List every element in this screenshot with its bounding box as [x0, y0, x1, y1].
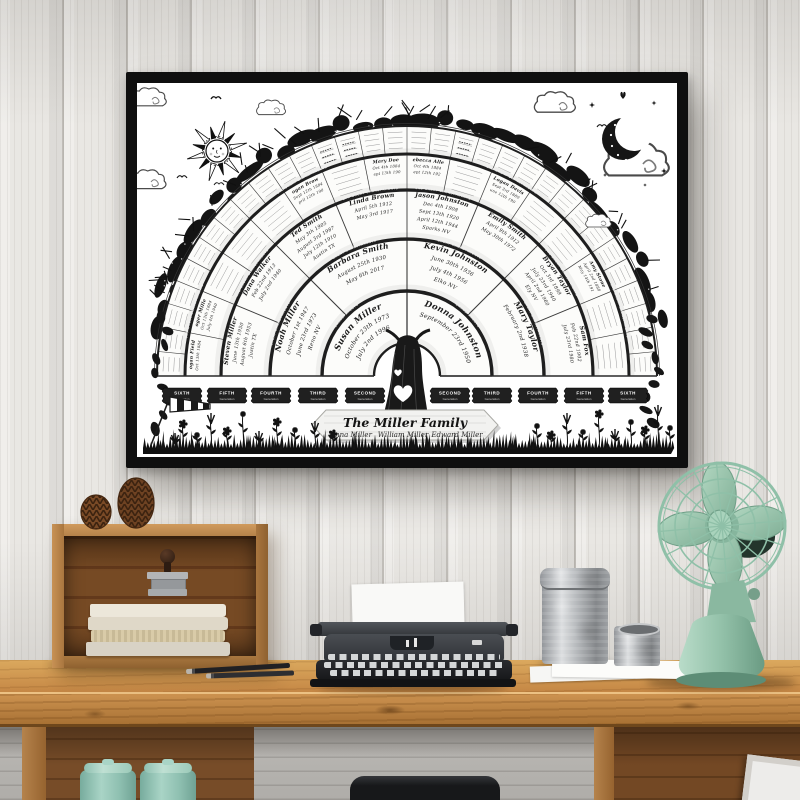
sun-icon — [187, 121, 247, 181]
wildflower — [222, 427, 232, 449]
butterfly-icon — [620, 92, 625, 99]
badge-generation-number: THIRD — [484, 391, 500, 396]
generation-badge: FOURTHGeneration — [518, 388, 558, 403]
generation-badge: THIRDGeneration — [472, 388, 512, 403]
cloud-icon — [534, 92, 575, 113]
key-row — [330, 670, 498, 676]
generation-badge: THIRDGeneration — [298, 388, 338, 403]
book — [88, 617, 228, 630]
paper-sheet — [351, 582, 464, 627]
typewriter-emblem — [472, 640, 482, 645]
fan-knob — [748, 588, 760, 600]
stool — [350, 776, 500, 800]
badge-generation-number: THIRD — [310, 391, 326, 396]
book — [90, 604, 226, 617]
left-cabinet-side — [22, 722, 46, 800]
badge-generation-number: FIFTH — [219, 391, 234, 396]
key-row — [324, 662, 504, 668]
badge-generation-word: Generation — [264, 397, 279, 401]
left-cabinet — [22, 722, 254, 800]
mint-jar — [80, 770, 136, 800]
wood-sign: The Miller FamilyAnna MillerWilliam Mill… — [312, 410, 501, 443]
typebar — [414, 638, 417, 647]
pinecones — [72, 474, 176, 530]
fan-foot — [676, 672, 766, 688]
cloud-icon — [137, 88, 166, 106]
badge-generation-word: Generation — [531, 397, 546, 401]
badge-generation-word: Generation — [621, 397, 636, 401]
right-cabinet-side — [594, 722, 614, 800]
under-desk — [0, 722, 800, 800]
family-tree-poster: Susan MillerOctober 23th 1973July 2nd 19… — [137, 83, 677, 457]
star-icon — [652, 101, 657, 106]
family-tree-fan-chart: Susan MillerOctober 23th 1973July 2nd 19… — [137, 83, 677, 457]
typewriter-typebasket — [390, 636, 434, 650]
book-paper-edge — [91, 630, 225, 642]
desk-front-edge — [0, 692, 800, 727]
cloud-icon — [137, 170, 166, 189]
generation-badge: SECONDGeneration — [430, 388, 470, 403]
stamp-base — [148, 589, 187, 596]
fan-base — [679, 614, 765, 682]
galvanized-canister-large — [542, 582, 608, 664]
generation-badge: FIFTHGeneration — [564, 388, 604, 403]
book — [86, 642, 230, 656]
stamp-bracket — [147, 572, 188, 579]
bird-icon — [214, 183, 224, 185]
bird-icon — [597, 125, 607, 127]
badge-generation-number: SECOND — [354, 391, 377, 396]
badge-generation-word: Generation — [485, 397, 500, 401]
crate-left-plank — [52, 524, 64, 668]
bird-icon — [211, 97, 221, 99]
typewriter-foot — [310, 679, 516, 687]
generation-badge: FIFTHGeneration — [207, 388, 247, 403]
wildflower — [562, 413, 572, 448]
star-icon — [643, 183, 647, 187]
star-icon — [589, 102, 595, 108]
vintage-typewriter — [310, 580, 516, 690]
sign-title: The Miller Family — [343, 415, 468, 430]
badge-generation-number: SECOND — [439, 391, 462, 396]
mint-jar — [140, 770, 196, 800]
fan-head — [653, 457, 792, 596]
badge-generation-number: SIXTH — [174, 391, 190, 396]
key-row — [328, 654, 500, 660]
generation-badge: SECONDGeneration — [345, 388, 385, 403]
badge-generation-number: FIFTH — [576, 391, 591, 396]
poster-frame: Susan MillerOctober 23th 1973July 2nd 19… — [126, 72, 688, 468]
cloud-icon — [257, 100, 286, 115]
badge-generation-word: Generation — [220, 397, 235, 401]
carriage-knob — [310, 624, 322, 636]
badge-generation-number: SIXTH — [620, 391, 636, 396]
typebar — [406, 640, 409, 647]
carriage-knob — [506, 624, 518, 636]
crate-right-plank — [256, 524, 268, 668]
sign-family-member: Edward Miller — [430, 431, 483, 439]
leaning-picture-frame — [741, 754, 800, 800]
vintage-desk-fan — [628, 434, 800, 692]
fan-cage — [654, 458, 791, 595]
sign-family-member: William Miller — [378, 431, 429, 439]
bird-icon — [177, 176, 187, 178]
canister-lid — [540, 568, 610, 590]
generation-badge: SIXTHGeneration — [608, 388, 648, 403]
badge-generation-word: Generation — [443, 397, 458, 401]
room-photo: Susan MillerOctober 23th 1973July 2nd 19… — [0, 0, 800, 800]
badge-generation-word: Generation — [577, 397, 592, 401]
generation-badge: FOURTHGeneration — [251, 388, 291, 403]
badge-generation-word: Generation — [311, 397, 326, 401]
badge-generation-word: Generation — [358, 397, 373, 401]
badge-generation-number: FOURTH — [527, 391, 549, 396]
badge-generation-number: FOURTH — [260, 391, 282, 396]
